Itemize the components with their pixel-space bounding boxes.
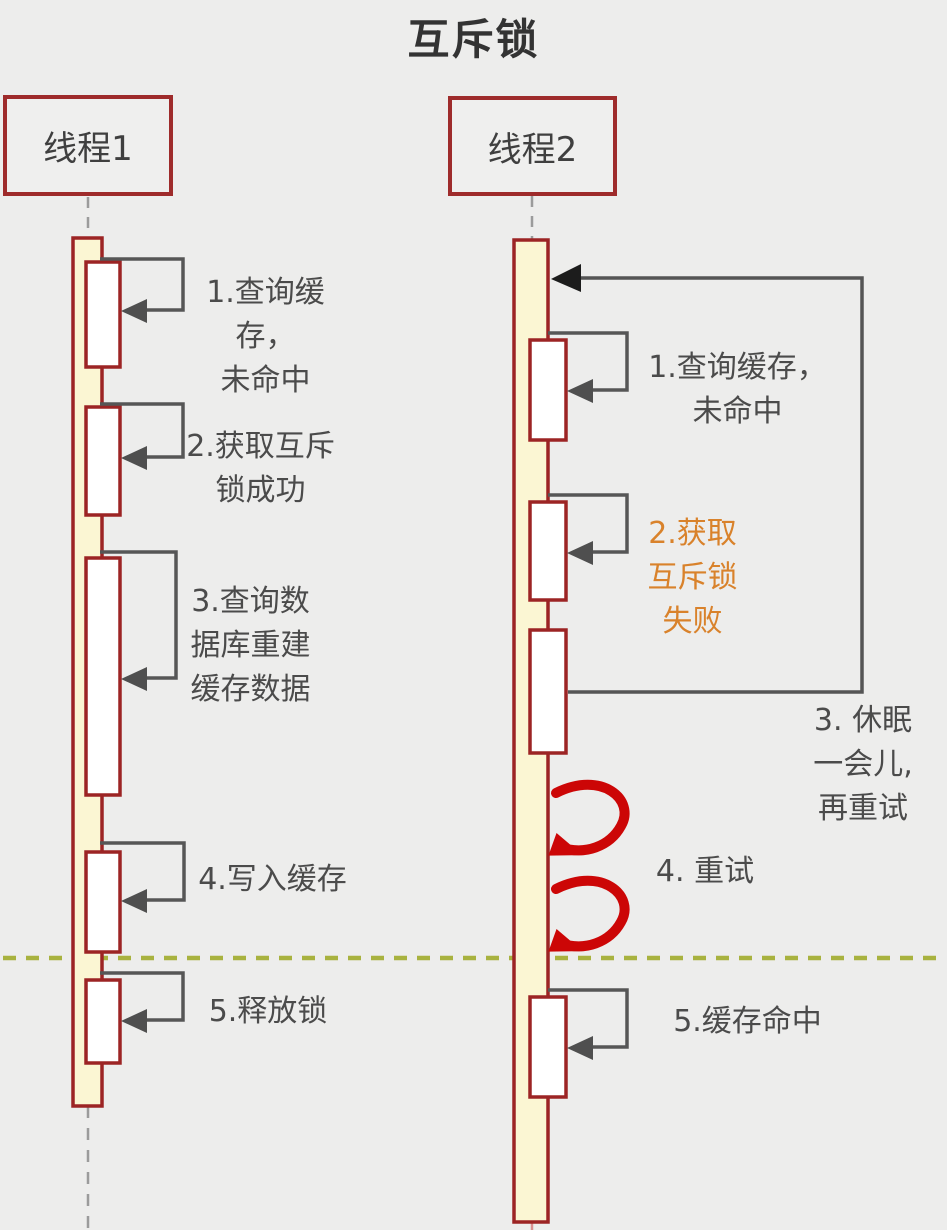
t1-step2-label: 2.获取互斥 锁成功 (178, 425, 343, 513)
t1-loop5-arrow-icon (121, 1009, 147, 1033)
t2-loop5-arrow-icon (567, 1036, 593, 1060)
retry-loop-arrow-icon (551, 264, 581, 292)
t2-step5-activation (530, 997, 566, 1097)
t2-step5-label: 5.缓存命中 (650, 1000, 845, 1044)
t2-step3-sleep-label: 3. 休眠 一会儿, 再重试 (792, 699, 934, 831)
t2-step1-activation (530, 340, 566, 440)
t1-step5-label: 5.释放锁 (188, 990, 348, 1034)
t1-step3-label: 3.查询数 据库重建 缓存数据 (168, 580, 333, 712)
t1-step1-activation (86, 262, 120, 367)
t1-step4-activation (86, 852, 120, 952)
t2-loop1-arrow-icon (567, 379, 593, 403)
t1-loop4-arrow-icon (121, 889, 147, 913)
t1-loop1-arrow-icon (121, 299, 147, 323)
thread2-box: 线程2 (448, 96, 617, 196)
t2-step2-fail-label: 2.获取 互斥锁 失败 (615, 512, 770, 644)
t1-step2-activation (86, 407, 120, 515)
thread1-label: 线程1 (43, 121, 133, 170)
t1-self-call-arrowheads (121, 299, 147, 1033)
thread2-label: 线程2 (488, 122, 578, 171)
diagram-title: 互斥锁 (0, 6, 947, 67)
t1-loop3-arrow-icon (121, 667, 147, 691)
mutex-sequence-diagram: 互斥锁 线程1 线程2 (0, 0, 947, 1230)
t1-step3-activation (86, 558, 120, 795)
t1-step1-label: 1.查询缓存， 未命中 (178, 271, 353, 403)
thread1-box: 线程1 (3, 95, 173, 196)
t1-step4-label: 4.写入缓存 (185, 858, 360, 902)
t2-step2-activation (530, 502, 566, 600)
t1-step5-activation (86, 980, 120, 1063)
t2-loop2-arrow-icon (567, 541, 593, 565)
t2-step3-activation (530, 630, 566, 753)
t1-loop2-arrow-icon (121, 446, 147, 470)
retry-spiral-icon-2 (556, 881, 625, 947)
t2-step4-retry-label: 4. 重试 (635, 850, 775, 894)
t2-step1-label: 1.查询缓存， 未命中 (630, 346, 845, 434)
retry-spiral-icon-1 (556, 785, 625, 851)
